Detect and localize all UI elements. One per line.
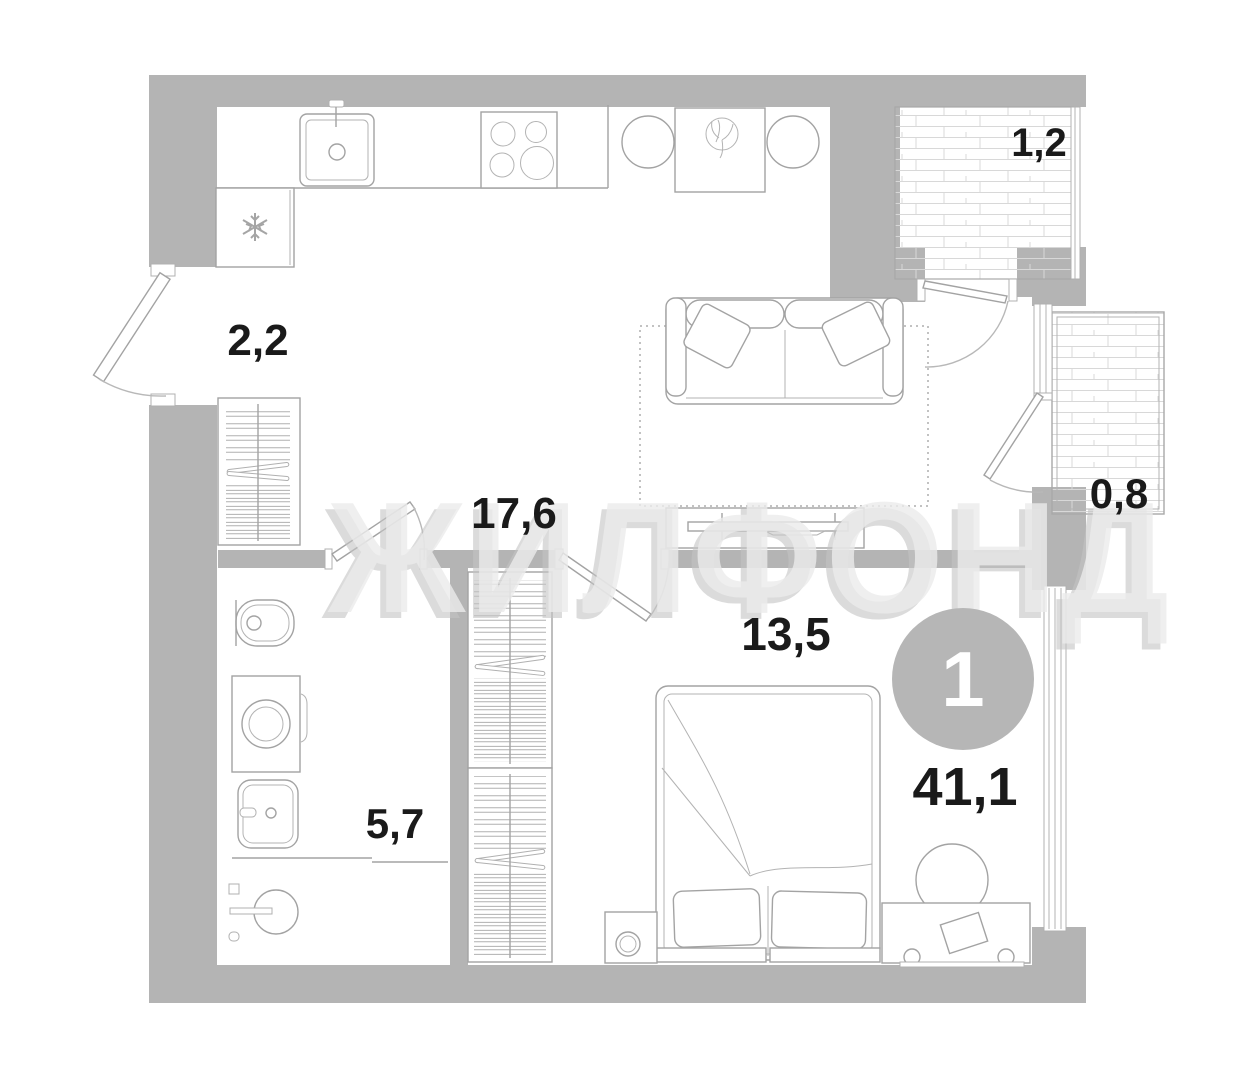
sofa-armrest bbox=[666, 298, 686, 396]
pillow bbox=[673, 889, 761, 948]
kitchen-living-area-label: 17,6 bbox=[471, 489, 557, 538]
entrance-door-leaf bbox=[94, 273, 171, 382]
hall-wardrobe bbox=[218, 398, 300, 545]
wall-top bbox=[149, 75, 1086, 107]
four-burner-stove-icon bbox=[481, 112, 557, 188]
sofa bbox=[666, 298, 903, 404]
balcony-top-area-label: 1,2 bbox=[1011, 121, 1067, 165]
sofa-armrest bbox=[883, 298, 903, 396]
apartment-badge: 1 41,1 bbox=[892, 608, 1034, 817]
balcony-right-area-label: 0,8 bbox=[1090, 470, 1148, 517]
entrance-door bbox=[94, 264, 175, 406]
fridge bbox=[216, 188, 294, 267]
balcony-right-door-leaf bbox=[984, 393, 1043, 479]
toilet-icon bbox=[236, 600, 294, 646]
balcony-right-window bbox=[1034, 304, 1052, 400]
balcony-top-door bbox=[917, 279, 1017, 367]
shower-head-icon bbox=[229, 884, 298, 941]
washing-machine-icon bbox=[232, 676, 307, 772]
wall-stub-window-bottom bbox=[1032, 927, 1086, 967]
kitchen bbox=[216, 100, 608, 267]
dining-set bbox=[622, 108, 819, 192]
balcony-top-door-leaf bbox=[923, 281, 1007, 303]
pillow bbox=[771, 891, 866, 949]
bed-footboard bbox=[770, 948, 880, 962]
floor-plan-page: ЖИЛФОНД ЖИЛФОНД 2,2 17,6 13,5 5,7 1,2 0,… bbox=[0, 0, 1260, 1080]
bedroom-area-label: 13,5 bbox=[741, 608, 831, 660]
bathroom-area-label: 5,7 bbox=[366, 800, 424, 847]
dining-chair-left bbox=[622, 116, 674, 168]
shower-partition bbox=[232, 858, 448, 862]
wall-left-lower bbox=[149, 405, 217, 1003]
kitchen-sink-icon bbox=[300, 100, 374, 186]
bed-footboard bbox=[656, 948, 766, 962]
wall-left-upper bbox=[149, 75, 217, 267]
floor-plan: ЖИЛФОНД ЖИЛФОНД 2,2 17,6 13,5 5,7 1,2 0,… bbox=[0, 0, 1260, 1080]
desk-and-chair bbox=[882, 844, 1030, 967]
rooms-count: 1 bbox=[941, 635, 984, 723]
bathroom-sink-icon bbox=[238, 780, 298, 848]
wall-bottom bbox=[149, 965, 1086, 1003]
total-area-label: 41,1 bbox=[912, 757, 1017, 817]
hallway-area-label: 2,2 bbox=[227, 316, 288, 365]
nightstand bbox=[605, 912, 657, 963]
dining-chair-right bbox=[767, 116, 819, 168]
wall-bathroom-top-a bbox=[218, 550, 325, 568]
bed bbox=[656, 686, 880, 962]
